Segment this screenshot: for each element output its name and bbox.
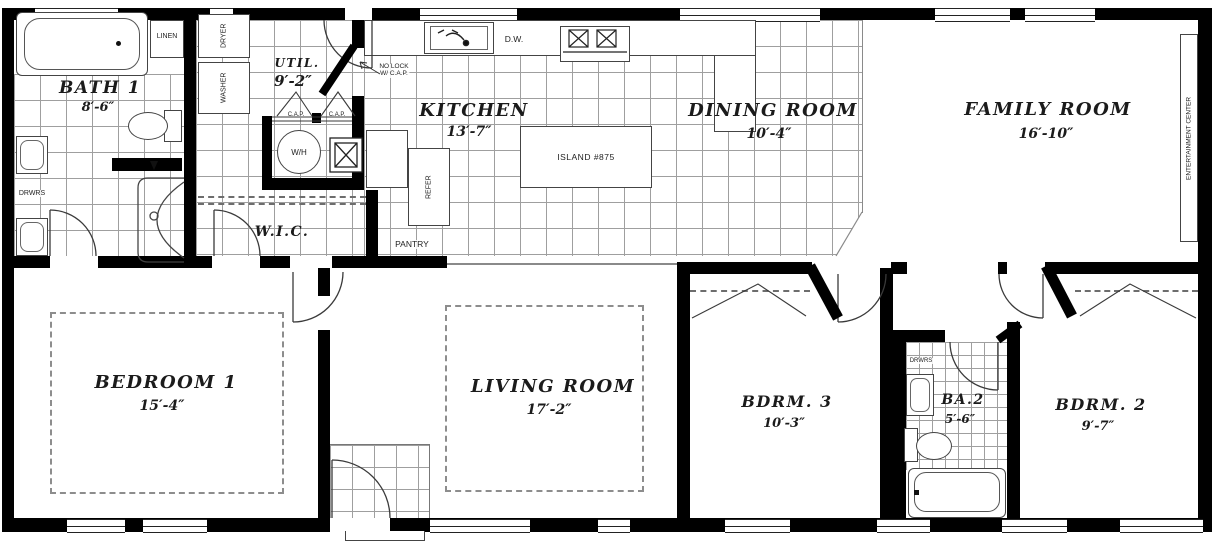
wall-wh-closet-bottom — [262, 178, 364, 190]
window — [67, 519, 125, 533]
wall-divider — [260, 256, 290, 268]
island-label: ISLAND #875 — [557, 152, 614, 162]
wall-bdrm3-right — [880, 268, 893, 330]
room-dim-bedroom1: 15′-4″ — [140, 398, 185, 414]
room-label-ba2: BA.2 — [941, 392, 984, 408]
room-dim-bdrm2: 9′-7″ — [1082, 419, 1115, 434]
room-dim-util: 9′-2″ — [274, 72, 312, 90]
ba2-toilet-bowl — [916, 432, 952, 460]
wall-ba2-bdrm2 — [1007, 322, 1020, 520]
window — [143, 519, 207, 533]
door-arc-bdrm3 — [838, 274, 886, 322]
ba2-tub-faucet — [914, 490, 919, 495]
wall-angled-bdrm3-closet — [810, 266, 838, 318]
washer-label: WASHER — [214, 66, 234, 110]
drwrs-label: DRWRS — [18, 190, 46, 197]
entry-tile-floor — [330, 444, 430, 518]
no-lock-line2: W/ C.A.P. — [379, 71, 408, 78]
wall-hall — [998, 262, 1007, 274]
wall-hall — [690, 262, 812, 274]
ba2-sink-bowl — [910, 378, 930, 412]
wall-cap-center-post — [312, 113, 321, 123]
wall-hall — [891, 262, 907, 274]
room-label-bdrm2: BDRM. 2 — [1055, 395, 1146, 414]
room-label-bath1: BATH 1 — [59, 78, 141, 98]
bathtub-drain — [116, 41, 121, 46]
window — [725, 519, 790, 533]
room-dim-ba2: 5′-6″ — [945, 412, 975, 426]
refrigerator-label: REFER — [419, 152, 439, 222]
wall-wh-closet-right — [352, 96, 364, 190]
living-room-carpet-outline — [445, 305, 644, 492]
wall-right — [1198, 8, 1212, 532]
window — [1025, 8, 1095, 22]
wall-bedroom1-door-jamb — [318, 268, 330, 296]
wall-divider — [98, 256, 212, 268]
room-label-bedroom1: BEDROOM 1 — [94, 372, 237, 393]
room-label-wic: W.I.C. — [255, 224, 310, 240]
window — [1120, 519, 1203, 533]
room-dim-kitchen: 13′-7″ — [447, 124, 492, 140]
wic-rod — [198, 203, 366, 205]
room-dim-dining: 10′-4″ — [747, 126, 792, 142]
window — [935, 8, 1010, 22]
dining-floor-edge — [862, 20, 863, 213]
kitchen-living-floor-transition — [447, 263, 677, 265]
room-label-kitchen: KITCHEN — [419, 100, 528, 121]
cap-left-label: C.A.P. — [287, 112, 306, 118]
dryer-label: DRYER — [214, 16, 234, 56]
stove — [560, 26, 630, 62]
room-dim-family: 16′-10″ — [1019, 126, 1074, 142]
wall-divider — [332, 256, 447, 268]
room-label-util: UTIL. — [274, 56, 319, 70]
ba2-bathtub-basin — [914, 472, 1000, 512]
kitchen-island: ISLAND #875 — [520, 126, 652, 188]
kitchen-sink-basin — [430, 26, 488, 50]
door-arc-bdrm2 — [999, 274, 1043, 318]
room-label-bdrm3: BDRM. 3 — [741, 392, 832, 411]
entertainment-center-label: ENTERTAINMENT CENTER — [1181, 40, 1197, 236]
bdrm2-closet-shelf — [1075, 290, 1198, 292]
water-heater-label: W/H — [291, 148, 307, 157]
wall-bedroom1-right — [318, 330, 330, 520]
window — [877, 519, 930, 533]
bathtub-basin — [24, 18, 140, 70]
dishwasher-label: D.W. — [504, 35, 524, 44]
wall-left — [2, 8, 14, 532]
wall-ba2-top — [906, 330, 945, 342]
wall-bdrm3-ba2 — [880, 330, 906, 520]
toilet-bowl — [128, 112, 168, 140]
water-heater: W/H — [277, 130, 321, 174]
room-dim-bath1: 8′-6″ — [82, 100, 115, 115]
window — [430, 519, 530, 533]
back-door-opening — [345, 8, 372, 20]
floor-plan: LINEN DRWRS DRYER WASHER W/H C.A.P. C.A.… — [0, 0, 1216, 541]
bdrm3-closet-shelf — [690, 290, 810, 292]
porch-step — [345, 531, 425, 541]
wall-bath1-right — [184, 20, 196, 268]
front-door-opening — [330, 518, 390, 532]
linen-label: LINEN — [156, 33, 179, 40]
wall-bdrm2-closet-back — [1045, 262, 1198, 274]
bath1-sink-upper-bowl — [20, 140, 44, 170]
wall-wic-right — [366, 190, 378, 268]
ba2-drwrs-label: DRWRS — [909, 358, 934, 364]
bath1-sink-lower-bowl — [20, 222, 44, 252]
room-label-family: FAMILY ROOM — [964, 99, 1131, 120]
wall-living-bdrm3 — [677, 262, 690, 520]
room-label-dining: DINING ROOM — [688, 100, 858, 121]
cabinet — [366, 130, 408, 188]
wall-divider — [14, 256, 50, 268]
window — [598, 519, 630, 533]
no-lock-label: NO LOCK W/ C.A.P. — [378, 64, 409, 78]
room-dim-living: 17′-2″ — [527, 402, 572, 418]
cap-right-label: C.A.P. — [328, 112, 347, 118]
room-label-living: LIVING ROOM — [471, 376, 635, 397]
wall-util-kitchen — [352, 20, 364, 48]
wic-shelf — [198, 196, 366, 198]
window — [1002, 519, 1067, 533]
pantry-label: PANTRY — [394, 240, 430, 249]
wall-shower-stub — [112, 158, 182, 171]
room-dim-bdrm3: 10′-3″ — [763, 416, 805, 431]
